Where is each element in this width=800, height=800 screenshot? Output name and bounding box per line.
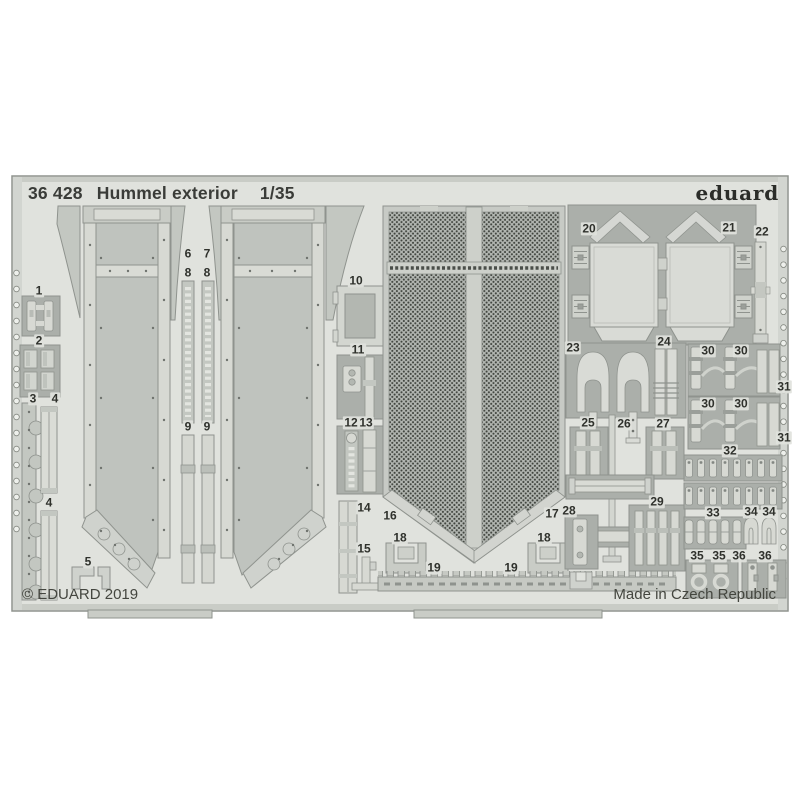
part-number-label: 19 [503,561,519,574]
part-number-label: 33 [705,506,721,519]
part-number-label: 30 [700,344,716,357]
part-number-label: 30 [733,397,749,410]
part-number-label: 18 [392,531,408,544]
part-number-label: 29 [649,495,665,508]
part-number-label: 31 [776,431,792,444]
part-number-label: 28 [561,504,577,517]
part-number-label: 8 [183,266,193,279]
part-number-label: 6 [183,247,193,260]
part-number-label: 31 [776,380,792,393]
part-number-label: 36 [731,549,747,562]
part-number-label: 19 [426,561,442,574]
part-number-label: 30 [733,344,749,357]
part-number-label: 30 [700,397,716,410]
part-number-label: 17 [544,507,560,520]
part-number-label: 9 [183,420,193,433]
part-number-label: 10 [348,274,364,287]
part-number-label: 11 [350,343,366,356]
part-number-label: 25 [580,416,596,429]
part-number-label: 32 [722,444,738,457]
part-number-label: 22 [754,225,770,238]
part-number-label: 26 [616,417,632,430]
part-number-label: 1 [34,284,44,297]
part-number-label: 36 [757,549,773,562]
part-number-label: 35 [711,549,727,562]
part-number-label: 16 [382,509,398,522]
part-number-label: 24 [656,335,672,348]
part-number-label: 35 [689,549,705,562]
part-number-label: 12 [343,416,359,429]
part-number-label: 9 [202,420,212,433]
product-photo-pe-sheet: 36 428 Hummel exterior 1/35 eduard © EDU… [0,0,800,800]
part-number-label: 4 [50,392,60,405]
part-number-label: 4 [44,496,54,509]
part-number-label: 27 [655,417,671,430]
part-number-label: 21 [721,221,737,234]
part-number-label: 23 [565,341,581,354]
part-number-label: 13 [358,416,374,429]
part-number-label: 3 [28,392,38,405]
part-number-label: 20 [581,222,597,235]
part-number-label: 34 [761,505,777,518]
part-number-label: 2 [34,334,44,347]
part-number-label: 7 [202,247,212,260]
part-number-label: 8 [202,266,212,279]
part-number-label: 15 [356,542,372,555]
part-number-label: 34 [743,505,759,518]
part-number-label: 18 [536,531,552,544]
part-number-label: 14 [356,501,372,514]
part-labels-layer: 1234456788991011121314151617181819192021… [0,0,800,800]
part-number-label: 5 [83,555,93,568]
